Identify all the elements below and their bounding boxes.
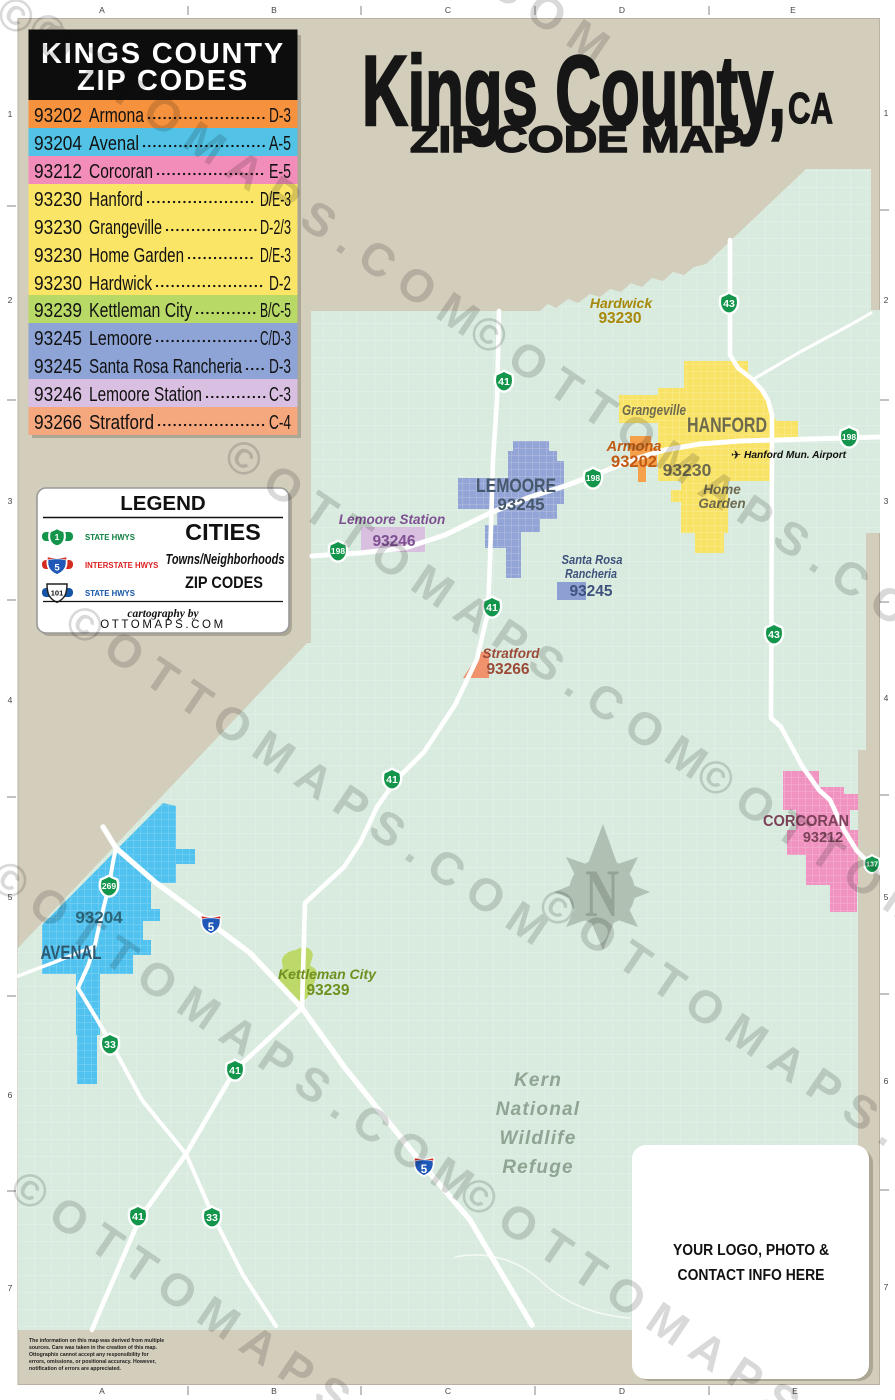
- svg-text:5: 5: [54, 563, 60, 574]
- svg-text:41: 41: [386, 774, 398, 786]
- svg-text:Ottographix cannot accept any: Ottographix cannot accept any responsibi…: [29, 1352, 149, 1358]
- svg-text:STATE HWYS: STATE HWYS: [85, 533, 135, 542]
- svg-text:National: National: [496, 1099, 581, 1120]
- svg-text:Kettleman City: Kettleman City: [89, 300, 192, 322]
- svg-text:Hanford Mun. Airport: Hanford Mun. Airport: [744, 450, 847, 461]
- svg-text:198: 198: [586, 473, 600, 483]
- svg-text:5: 5: [208, 921, 215, 934]
- svg-text:Wildlife: Wildlife: [500, 1128, 577, 1149]
- svg-text:93245: 93245: [569, 583, 612, 600]
- svg-text:4: 4: [884, 693, 889, 703]
- svg-text:93230: 93230: [34, 245, 82, 267]
- svg-text:A: A: [99, 5, 105, 15]
- svg-text:198: 198: [842, 432, 856, 442]
- svg-text:✈: ✈: [731, 448, 741, 462]
- svg-text:93204: 93204: [34, 133, 82, 155]
- svg-text:LEMOORE: LEMOORE: [476, 475, 556, 497]
- svg-text:4: 4: [8, 695, 13, 705]
- svg-text:Lemoore: Lemoore: [89, 328, 152, 350]
- svg-text:D-3: D-3: [269, 105, 291, 127]
- svg-text:B/C-5: B/C-5: [260, 300, 291, 322]
- svg-text:93246: 93246: [34, 384, 82, 406]
- svg-text:C: C: [445, 1386, 451, 1396]
- svg-text:2: 2: [884, 295, 889, 305]
- svg-text:Rancheria: Rancheria: [565, 566, 617, 581]
- svg-text:93230: 93230: [34, 273, 82, 295]
- svg-text:ZIP CODE MAP: ZIP CODE MAP: [410, 119, 744, 160]
- svg-text:B: B: [271, 5, 277, 15]
- svg-text:D/E-3: D/E-3: [260, 245, 291, 267]
- svg-text:Stratford: Stratford: [89, 412, 154, 434]
- svg-text:LEGEND: LEGEND: [120, 492, 205, 515]
- svg-text:6: 6: [884, 1076, 889, 1086]
- svg-text:Santa Rosa: Santa Rosa: [562, 552, 623, 567]
- svg-text:Towns/Neighborhoods: Towns/Neighborhoods: [166, 551, 285, 568]
- svg-text:D-3: D-3: [269, 356, 291, 378]
- svg-text:A-5: A-5: [269, 133, 291, 155]
- svg-text:notification of errors are app: notification of errors are appreciated.: [29, 1366, 122, 1372]
- svg-text:INTERSTATE HWYS: INTERSTATE HWYS: [85, 561, 158, 570]
- svg-text:Corcoran: Corcoran: [89, 161, 153, 183]
- svg-text:STATE HWYS: STATE HWYS: [85, 589, 135, 598]
- svg-text:D: D: [619, 5, 625, 15]
- svg-text:CONTACT INFO HERE: CONTACT INFO HERE: [678, 1267, 825, 1284]
- svg-text:A: A: [99, 1386, 105, 1396]
- svg-text:41: 41: [132, 1211, 144, 1223]
- svg-text:C-3: C-3: [269, 384, 291, 406]
- svg-text:93230: 93230: [34, 217, 82, 239]
- svg-text:43: 43: [768, 629, 780, 641]
- svg-text:sources. Care was taken in the: sources. Care was taken in the creation …: [29, 1345, 158, 1351]
- svg-text:93230: 93230: [598, 310, 641, 327]
- svg-text:Hanford: Hanford: [89, 189, 143, 211]
- svg-text:Lemoore Station: Lemoore Station: [89, 384, 202, 406]
- svg-text:43: 43: [723, 298, 735, 310]
- svg-text:269: 269: [102, 881, 116, 891]
- svg-text:93212: 93212: [34, 161, 82, 183]
- svg-text:Hardwick: Hardwick: [590, 295, 653, 311]
- svg-text:3: 3: [884, 496, 889, 506]
- svg-text:93245: 93245: [34, 328, 82, 350]
- svg-text:C/D-3: C/D-3: [260, 328, 291, 350]
- svg-text:Kern: Kern: [514, 1070, 562, 1091]
- svg-text:Santa Rosa Rancheria: Santa Rosa Rancheria: [89, 356, 243, 378]
- svg-text:D-2: D-2: [269, 273, 291, 295]
- svg-text:Refuge: Refuge: [502, 1157, 574, 1178]
- svg-text:93239: 93239: [34, 300, 82, 322]
- svg-text:6: 6: [8, 1090, 13, 1100]
- svg-text:ZIP CODES: ZIP CODES: [185, 573, 263, 592]
- svg-text:1: 1: [884, 108, 889, 118]
- svg-text:C: C: [445, 5, 451, 15]
- svg-text:93202: 93202: [34, 105, 82, 127]
- svg-text:D: D: [619, 1386, 625, 1396]
- svg-text:CA: CA: [788, 84, 833, 133]
- svg-text:7: 7: [8, 1283, 13, 1293]
- svg-text:93245: 93245: [497, 495, 544, 514]
- svg-text:Home Garden: Home Garden: [89, 245, 184, 267]
- svg-text:93239: 93239: [306, 982, 349, 999]
- svg-text:1: 1: [55, 532, 60, 542]
- svg-text:Hardwick: Hardwick: [89, 273, 153, 295]
- svg-text:3: 3: [8, 496, 13, 506]
- svg-text:33: 33: [206, 1212, 218, 1224]
- svg-text:The information on this map wa: The information on this map was derived …: [29, 1338, 164, 1344]
- svg-text:HANFORD: HANFORD: [687, 414, 767, 437]
- svg-text:1: 1: [8, 109, 13, 119]
- svg-text:Kettleman City: Kettleman City: [278, 966, 377, 982]
- svg-text:41: 41: [229, 1065, 241, 1077]
- svg-text:33: 33: [104, 1039, 116, 1051]
- svg-text:7: 7: [884, 1282, 889, 1292]
- svg-text:93266: 93266: [34, 412, 82, 434]
- svg-text:errors, omissions, or position: errors, omissions, or positional accurac…: [29, 1359, 156, 1365]
- svg-text:93245: 93245: [34, 356, 82, 378]
- svg-text:2: 2: [8, 295, 13, 305]
- svg-text:YOUR LOGO, PHOTO &: YOUR LOGO, PHOTO &: [673, 1242, 829, 1259]
- svg-text:C-4: C-4: [269, 412, 291, 434]
- svg-text:Grangeville: Grangeville: [89, 217, 162, 239]
- svg-text:E: E: [790, 5, 796, 15]
- svg-text:93230: 93230: [34, 189, 82, 211]
- svg-text:CITIES: CITIES: [185, 519, 261, 545]
- svg-text:101: 101: [51, 589, 64, 598]
- svg-text:Avenal: Avenal: [89, 133, 139, 155]
